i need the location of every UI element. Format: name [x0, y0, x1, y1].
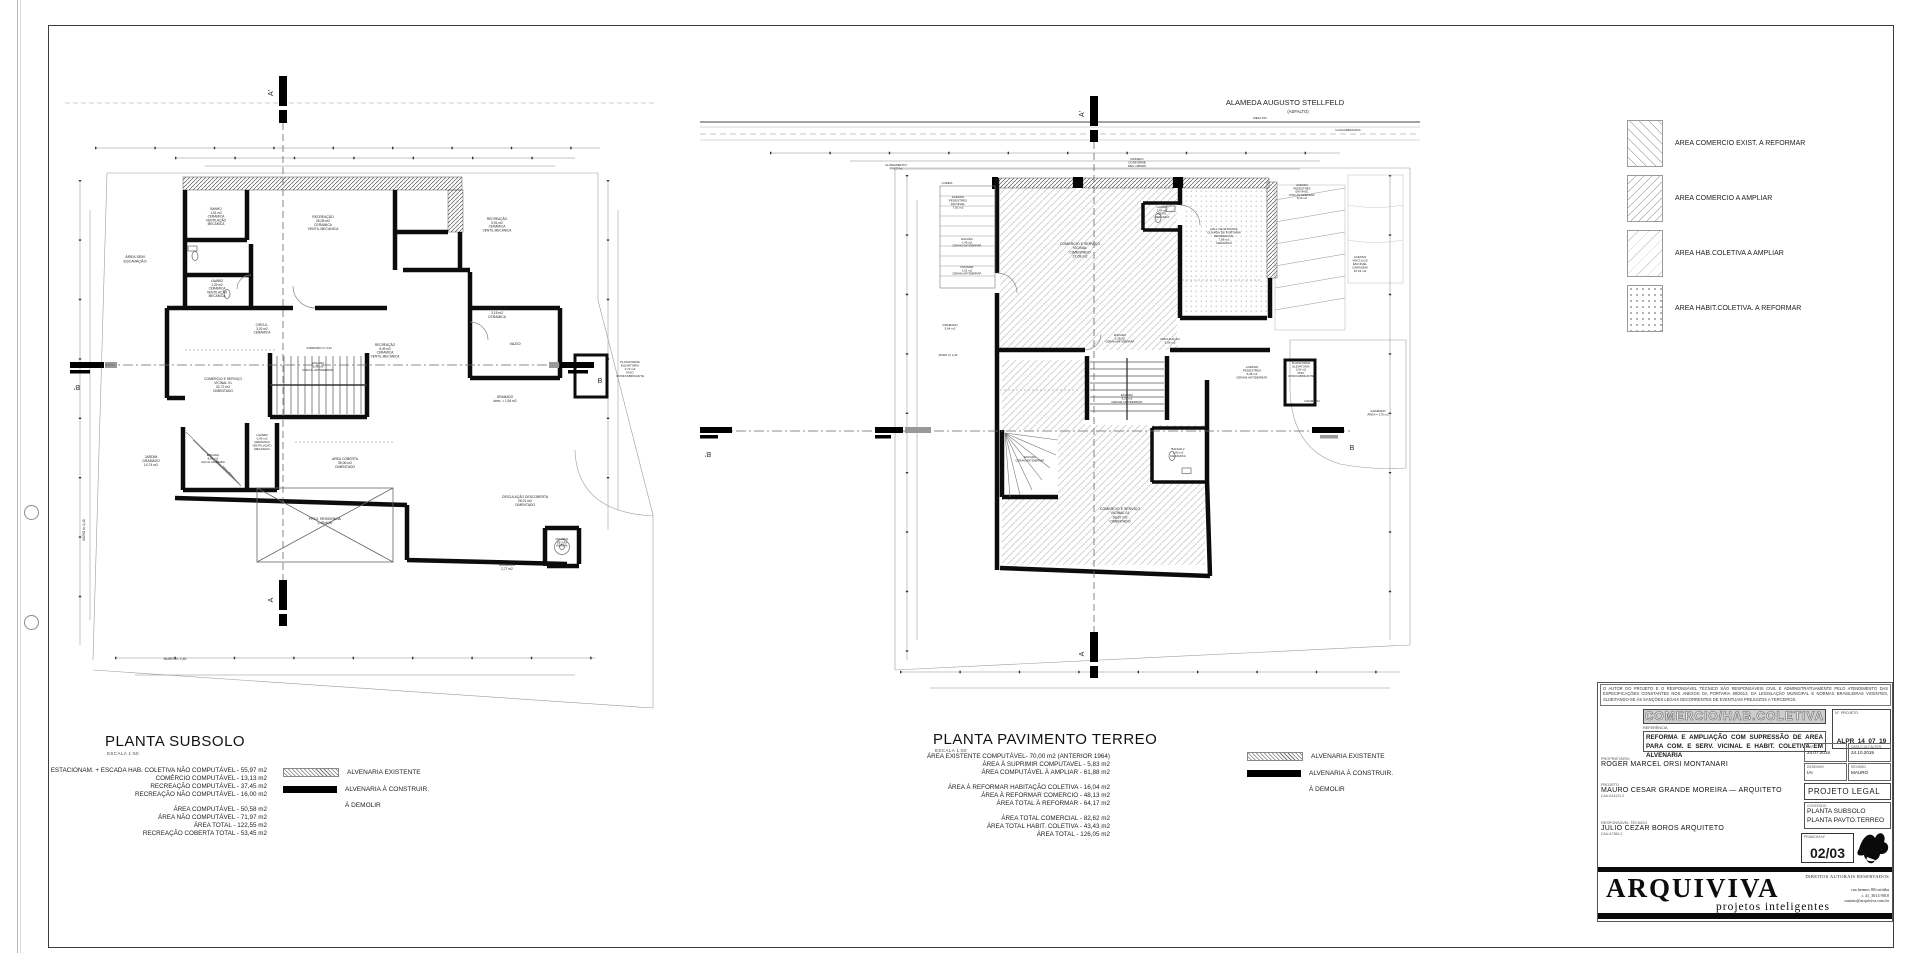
- room-label: ESCADA8,06 m2CIRCUL.ANTIDERRAP.: [302, 361, 334, 372]
- area-legend-item: AREA COMERCIO EXIST. A REFORMAR: [1627, 120, 1805, 167]
- room-label: GUIA REBAIXADA: [1335, 128, 1360, 132]
- section-marker-label: B': [74, 383, 80, 390]
- area-legend-item: AREA HAB.COLETIVA A AMPLIAR: [1627, 230, 1805, 277]
- sheet-edge-line-2: [20, 0, 21, 953]
- dashed-swatch-icon: [1247, 786, 1301, 793]
- area-stat-line: ÁREA EXISTENTE COMPUTÁVEL- 70,00 m2 (ANT…: [845, 753, 1110, 761]
- sheet-number-value: 02/03: [1802, 845, 1853, 861]
- section-marker-label: A: [1079, 651, 1086, 656]
- revision-box: REVISÃO MAURO: [1848, 763, 1891, 781]
- section-marker-label: B: [598, 378, 603, 385]
- draftsman-label: DESENHO: [1807, 765, 1846, 769]
- room-label: PROJ. RESIDENCIA2,40x6,00: [309, 517, 341, 525]
- section-marker-label: A: [268, 597, 275, 602]
- date-box: DATA 24.07.2019: [1804, 743, 1847, 762]
- brand-footer: ARQUIVIVA projetos inteligentes DIREITOS…: [1598, 867, 1892, 919]
- area-stat-line: ÁREA À REFORMAR HABITAÇÃO COLETIVA - 16,…: [845, 784, 1110, 792]
- room-label: ÁREA SEMESCAVAÇÃO: [123, 255, 146, 263]
- last-change-value: 24.10.2019: [1851, 750, 1890, 755]
- contents-lines: PLANTA SUBSOLOPLANTA PAVTO.TERREO: [1805, 808, 1890, 825]
- project-phase: PROJETO LEGAL: [1804, 783, 1891, 800]
- room-label: GRAMADO: [1304, 399, 1320, 403]
- room-label: AREA COBERTA35,06 m2CIMENTADO: [332, 457, 359, 469]
- referencia-text: REFORMA E AMPLIAÇÃO COM SUPRESSÃO DE ARE…: [1643, 731, 1826, 752]
- hatch-swatch-icon: [1627, 120, 1663, 167]
- area-stat-line: ÁREA TOTAL - 126,05 m2: [845, 831, 1110, 839]
- street-name: ALAMEDA AUGUSTO STELLFELD: [1226, 98, 1345, 107]
- terreo-title: PLANTA PAVIMENTO TERREO: [933, 731, 1157, 748]
- date-value: 24.07.2019: [1807, 750, 1846, 755]
- room-label: CORRIMÃO h= 0,92: [306, 345, 332, 350]
- street-surface: (ASFALTO): [1287, 109, 1309, 114]
- contents-box: CONTEÚDO PLANTA SUBSOLOPLANTA PAVTO.TERR…: [1804, 802, 1891, 829]
- binder-hole: [24, 505, 39, 520]
- subsolo-details: [185, 246, 570, 562]
- architect-name: MAURO CESAR GRANDE MOREIRA — ARQUITETO: [1601, 787, 1782, 794]
- date-label: DATA: [1807, 745, 1846, 749]
- area-stat-line: ÁREA NÃO COMPUTÁVEL - 71,97 m2: [40, 814, 267, 822]
- dashed-swatch-icon: [283, 802, 337, 809]
- area-legend-label: AREA HABIT.COLETIVA. A REFORMAR: [1675, 305, 1801, 312]
- area-legend-label: AREA COMERCIO EXIST. A REFORMAR: [1675, 140, 1805, 147]
- section-marker-label: A': [268, 90, 275, 96]
- room-label: MURO h= 2,40: [939, 353, 958, 357]
- hatch-swatch-icon: [1627, 175, 1663, 222]
- responsible-license: CAU A7360-2: [1601, 832, 1724, 836]
- room-label: MEIO FIO: [1253, 116, 1267, 120]
- revision-value: MAURO: [1851, 770, 1890, 775]
- area-type-legend: AREA COMERCIO EXIST. A REFORMARAREA COME…: [1627, 120, 1805, 340]
- brand-contact: rua hermes 80/curitibat. 41_3014 9018con…: [1844, 887, 1889, 904]
- area-legend-item: AREA HABIT.COLETIVA. A REFORMAR: [1627, 285, 1805, 332]
- stat-group: ESTACIONAM. + ESCADA HAB. COLETIVA NÃO C…: [40, 767, 267, 799]
- room-label: ALINHAMENTOPREDIAL: [885, 163, 907, 171]
- project-number-label: N°. PROJETO: [1835, 711, 1890, 715]
- room-label: GRAMADO5,64 m2: [942, 323, 958, 331]
- room-label: GRAMADOÁREA = 176 m2: [1367, 409, 1389, 417]
- stat-group: ÁREA COMPUTÁVEL - 50,58 m2ÁREA NÃO COMPU…: [40, 806, 267, 838]
- room-label: MURO h= 2,40: [82, 519, 86, 541]
- contact-line: rua hermes 80/curitiba: [1844, 887, 1889, 893]
- hatch-swatch-icon: [1627, 230, 1663, 277]
- hatch-swatch-icon: [283, 768, 339, 777]
- room-label: LIXEIRA: [942, 181, 953, 185]
- last-change-box: DATA C.ULT.ALTER. 24.10.2019: [1848, 743, 1891, 762]
- room-label: MURO h= 2,40: [164, 657, 187, 661]
- owner-name: ROGER MARCEL ORSI MONTANARI: [1601, 761, 1728, 768]
- room-label: PASSEIOCONFORMEDEC.1066/06: [1128, 157, 1146, 168]
- area-legend-item: AREA COMERCIO A AMPLIAR: [1627, 175, 1805, 222]
- room-label: GRAMADOdesn. = 1,54 m2: [494, 395, 517, 403]
- room-label: CIRCUL.3,02 m2CERAMICA: [254, 323, 272, 335]
- area-legend-label: AREA HAB.COLETIVA A AMPLIAR: [1675, 250, 1784, 257]
- wall-legend: ALVENARIA EXISTENTEALVENARIA À CONSTRUIR…: [1247, 752, 1393, 802]
- room-label: LAVABO1,29 m2CERAMICAVENTILAÇÃOMECANICA: [207, 279, 228, 298]
- area-legend-label: AREA COMERCIO A AMPLIAR: [1675, 195, 1772, 202]
- wall-legend-label: ALVENARIA À CONSTRUIR.: [345, 786, 429, 793]
- area-stat-line: RECREAÇÃO COMPUTÁVEL - 37,45 m2: [40, 783, 267, 791]
- disclaimer-text: O AUTOR DO PROJETO E O RESPONSÁVEL TÉCNI…: [1600, 684, 1891, 706]
- room-label: PLATAFORMAELEVATORIA2,72 m2PISOCONF.FABR…: [616, 360, 644, 378]
- wall-legend: ALVENARIA EXISTENTEALVENARIA À CONSTRUIR…: [283, 768, 429, 818]
- stat-group: ÁREA EXISTENTE COMPUTÁVEL- 70,00 m2 (ANT…: [845, 753, 1110, 777]
- architectural-sheet: ÁREA SEMESCAVAÇÃOBANHO1,91 m2CERAMICAVEN…: [0, 0, 1920, 953]
- room-label: ESCADA1,45 m2CERAM.ANTIDERRAP.: [952, 237, 982, 248]
- architect-license: CAU A14131-2: [1601, 794, 1782, 798]
- wall-legend-label: À DEMOLIR: [1309, 786, 1345, 793]
- room-label: ACESSOPEDESTRESEM NIVEL7,62 m2: [949, 195, 967, 210]
- hatch-swatch-icon: [1627, 285, 1663, 332]
- wall-legend-label: ALVENARIA EXISTENTE: [1311, 753, 1385, 760]
- signature-stamp: [1855, 827, 1891, 867]
- stat-group: ÁREA À REFORMAR HABITAÇÃO COLETIVA - 16,…: [845, 784, 1110, 808]
- area-stat-line: ÁREA À REFORMAR COMERCIO - 48,13 m2: [845, 792, 1110, 800]
- section-marker-label: B: [1350, 445, 1355, 452]
- wall-legend-item: ALVENARIA À CONSTRUIR.: [1247, 770, 1393, 777]
- room-label: ACESSOPEDESTRES5,08 m2CERAM.ANTIDERRAP.: [1236, 365, 1268, 380]
- owner-field: PROPRIETÁRIO ROGER MARCEL ORSI MONTANARI: [1601, 757, 1728, 768]
- subsolo-plan-drawing: ÁREA SEMESCAVAÇÃOBANHO1,91 m2CERAMICAVEN…: [55, 60, 675, 730]
- subsolo-boundary: [65, 103, 655, 708]
- room-label: RECREAÇÃO5,91 m2CERAMICAVENTIL.MECANICA: [483, 216, 513, 232]
- area-stat-line: ÁREA À SUPRIMIR COMPUTAVEL - 5,83 m2: [845, 761, 1110, 769]
- contents-line: PLANTA PAVTO.TERREO: [1807, 817, 1890, 826]
- contents-line: PLANTA SUBSOLO: [1807, 808, 1890, 817]
- responsible-field: RESPONSÁVEL TÉCNICO JULIO CEZAR BOROS AR…: [1601, 821, 1724, 836]
- sheet-number-box: PRANCHA Nº 02/03: [1801, 833, 1854, 863]
- solid-swatch-icon: [1247, 770, 1301, 777]
- wall-legend-label: ALVENARIA À CONSTRUIR.: [1309, 770, 1393, 777]
- room-label: VAZIO: [509, 342, 520, 346]
- draftsman-value: IAI: [1807, 770, 1846, 775]
- terreo-area-stats: ÁREA EXISTENTE COMPUTÁVEL- 70,00 m2 (ANT…: [845, 753, 1110, 846]
- area-stat-line: ÁREA TOTAL À REFORMAR - 64,17 m2: [845, 800, 1110, 808]
- room-label: CIRCULAÇÃO DESCOBERTA26,01 m2CIMENTADO: [502, 494, 549, 507]
- room-label: ESCADA8,61 m2AÇO E MADEIRA: [201, 453, 225, 464]
- footer-bottom-bar: [1598, 913, 1892, 919]
- category-band: COMERCIO/HAB.COLETIVA: [1643, 709, 1826, 724]
- last-change-label: DATA C.ULT.ALTER.: [1851, 745, 1890, 749]
- hatch-swatch-icon: [1247, 752, 1303, 761]
- area-stat-line: ÁREA TOTAL HABIT. COLETIVA - 43,43 m2: [845, 823, 1110, 831]
- title-block: O AUTOR DO PROJETO E O RESPONSÁVEL TÉCNI…: [1597, 682, 1893, 922]
- wall-legend-item: À DEMOLIR: [283, 802, 429, 809]
- brand-logo-text: ARQUIVIVA: [1606, 873, 1780, 904]
- wall-legend-label: ALVENARIA EXISTENTE: [347, 769, 421, 776]
- subsolo-section-markers: [70, 76, 594, 626]
- wall-legend-item: À DEMOLIR: [1247, 786, 1393, 793]
- rights-text: DIREITOS AUTORAIS RESERVADOS: [1805, 874, 1889, 879]
- sheet-edge-line: [17, 0, 18, 953]
- room-label: ACESSOPEDESTRESEM NIVELPISO ANTIDERRAP.8…: [1289, 183, 1315, 200]
- referencia-label: REFERÊNCIA: [1643, 726, 1667, 730]
- sheet-number-label: PRANCHA Nº: [1804, 835, 1853, 839]
- room-label: BANHO1,91 m2CERAMICAVENTILAÇÃOMECANICA: [206, 207, 227, 226]
- room-label: ACESSOVEICULOSEM NIVELGARAGEM15,43 m2: [1352, 255, 1368, 273]
- room-label: CENTRALDE GÁSHIDROM.: [555, 537, 568, 548]
- area-stat-line: COMÉRCIO COMPUTÁVEL - 13,13 m2: [40, 775, 267, 783]
- architect-field: PROJETO MAURO CESAR GRANDE MOREIRA — ARQ…: [1601, 783, 1782, 798]
- brand-tagline: projetos inteligentes: [1716, 901, 1830, 913]
- solid-swatch-icon: [283, 786, 337, 793]
- area-stat-line: RECREAÇÃO COBERTA TOTAL - 53,45 m2: [40, 830, 267, 838]
- terreo-plan-drawing: ALAMEDA AUGUSTO STELLFELD(ASFALTO)MEIO F…: [700, 60, 1420, 730]
- room-label: JARDIMGRAMADO14,74 m2: [142, 455, 160, 467]
- room-label: GRAMADO2,77 m2: [499, 563, 516, 571]
- footer-top-bar: [1598, 867, 1892, 872]
- wall-legend-item: ALVENARIA EXISTENTE: [283, 768, 429, 777]
- terreo-street-lines: [700, 122, 1420, 140]
- revision-label: REVISÃO: [1851, 765, 1890, 769]
- room-label: VESTIBULO3,15 m2CERAMICA: [487, 307, 506, 319]
- room-label: LAVABO0,96 m2CERAMICAVENTILAÇÃOMECANICA: [252, 433, 272, 451]
- area-stat-line: ÁREA TOTAL COMERCIAL - 82,62 m2: [845, 815, 1110, 823]
- area-stat-line: RECREAÇÃO NÃO COMPUTÁVEL - 16,00 m2: [40, 791, 267, 799]
- room-label: RECREAÇÃO26,05 m2CERAMICAVENTIL.MECANICA: [308, 214, 339, 231]
- stat-group: ÁREA TOTAL COMERCIAL - 82,62 m2ÁREA TOTA…: [845, 815, 1110, 839]
- room-label: PLATAFORMAELEVATORIA2,04 m2PISOCONF.FABR…: [1288, 361, 1314, 378]
- wall-legend-label: À DEMOLIR: [345, 802, 381, 809]
- draftsman-box: DESENHO IAI: [1804, 763, 1847, 781]
- room-label: LAVABO1,64 m2VENTIL.MECANICA: [1155, 205, 1170, 219]
- area-stat-line: ÁREA TOTAL - 122,55 m2: [40, 822, 267, 830]
- room-label: PATAMAR1,61 m2CERAM.ANTIDERRAP.: [952, 265, 982, 276]
- section-marker-label: A': [1079, 111, 1086, 117]
- area-stat-line: ESTACIONAM. + ESCADA HAB. COLETIVA NÃO C…: [40, 767, 267, 775]
- subsolo-title: PLANTA SUBSOLO: [105, 733, 245, 750]
- wall-legend-item: ALVENARIA EXISTENTE: [1247, 752, 1393, 761]
- wall-legend-item: ALVENARIA À CONSTRUIR.: [283, 786, 429, 793]
- responsible-name: JULIO CEZAR BOROS ARQUITETO: [1601, 825, 1724, 832]
- subsolo-dimension-lines: [80, 148, 618, 675]
- subsolo-scale: ESCALA 1:50: [107, 751, 139, 756]
- section-marker-label: B': [705, 450, 711, 457]
- room-label: COMERCIO E SERVIÇOVICINAL 0132,72 m2CIME…: [204, 377, 242, 393]
- binder-hole: [24, 615, 39, 630]
- room-label: RECREAÇÃO5,49 m2CERAMICAVENTIL.MECANICA: [371, 342, 401, 358]
- area-stat-line: ÁREA COMPUTÁVEL À AMPLIAR - 61,88 m2: [845, 769, 1110, 777]
- area-stat-line: ÁREA COMPUTÁVEL - 50,58 m2: [40, 806, 267, 814]
- subsolo-area-stats: ESTACIONAM. + ESCADA HAB. COLETIVA NÃO C…: [40, 767, 267, 845]
- contact-line: contato@arquiviva.com.br: [1844, 898, 1889, 904]
